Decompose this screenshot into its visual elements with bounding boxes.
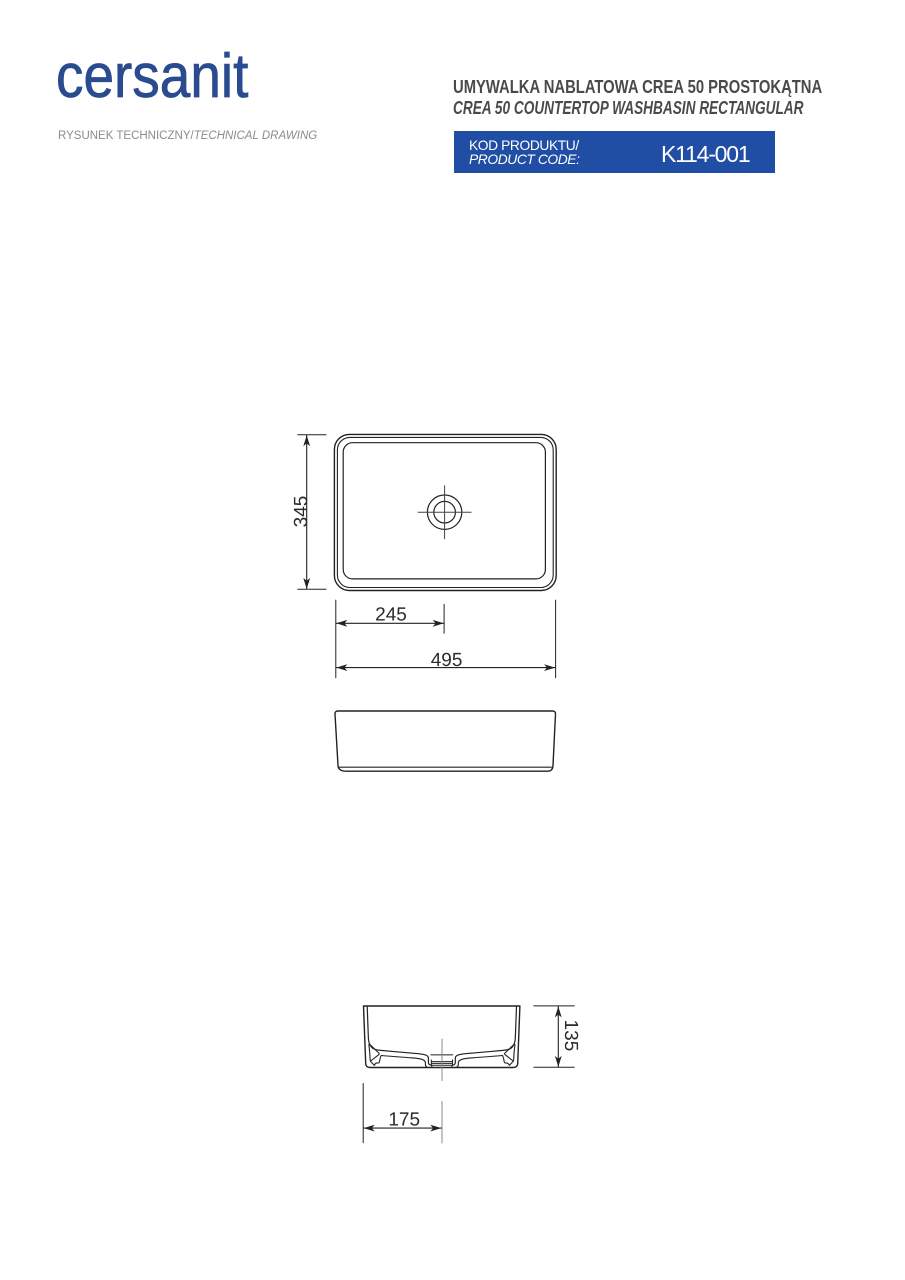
svg-text:245: 245	[375, 605, 407, 626]
svg-text:345: 345	[291, 496, 312, 528]
svg-text:495: 495	[431, 650, 463, 671]
svg-text:135: 135	[560, 1020, 581, 1052]
svg-text:175: 175	[388, 1109, 420, 1130]
